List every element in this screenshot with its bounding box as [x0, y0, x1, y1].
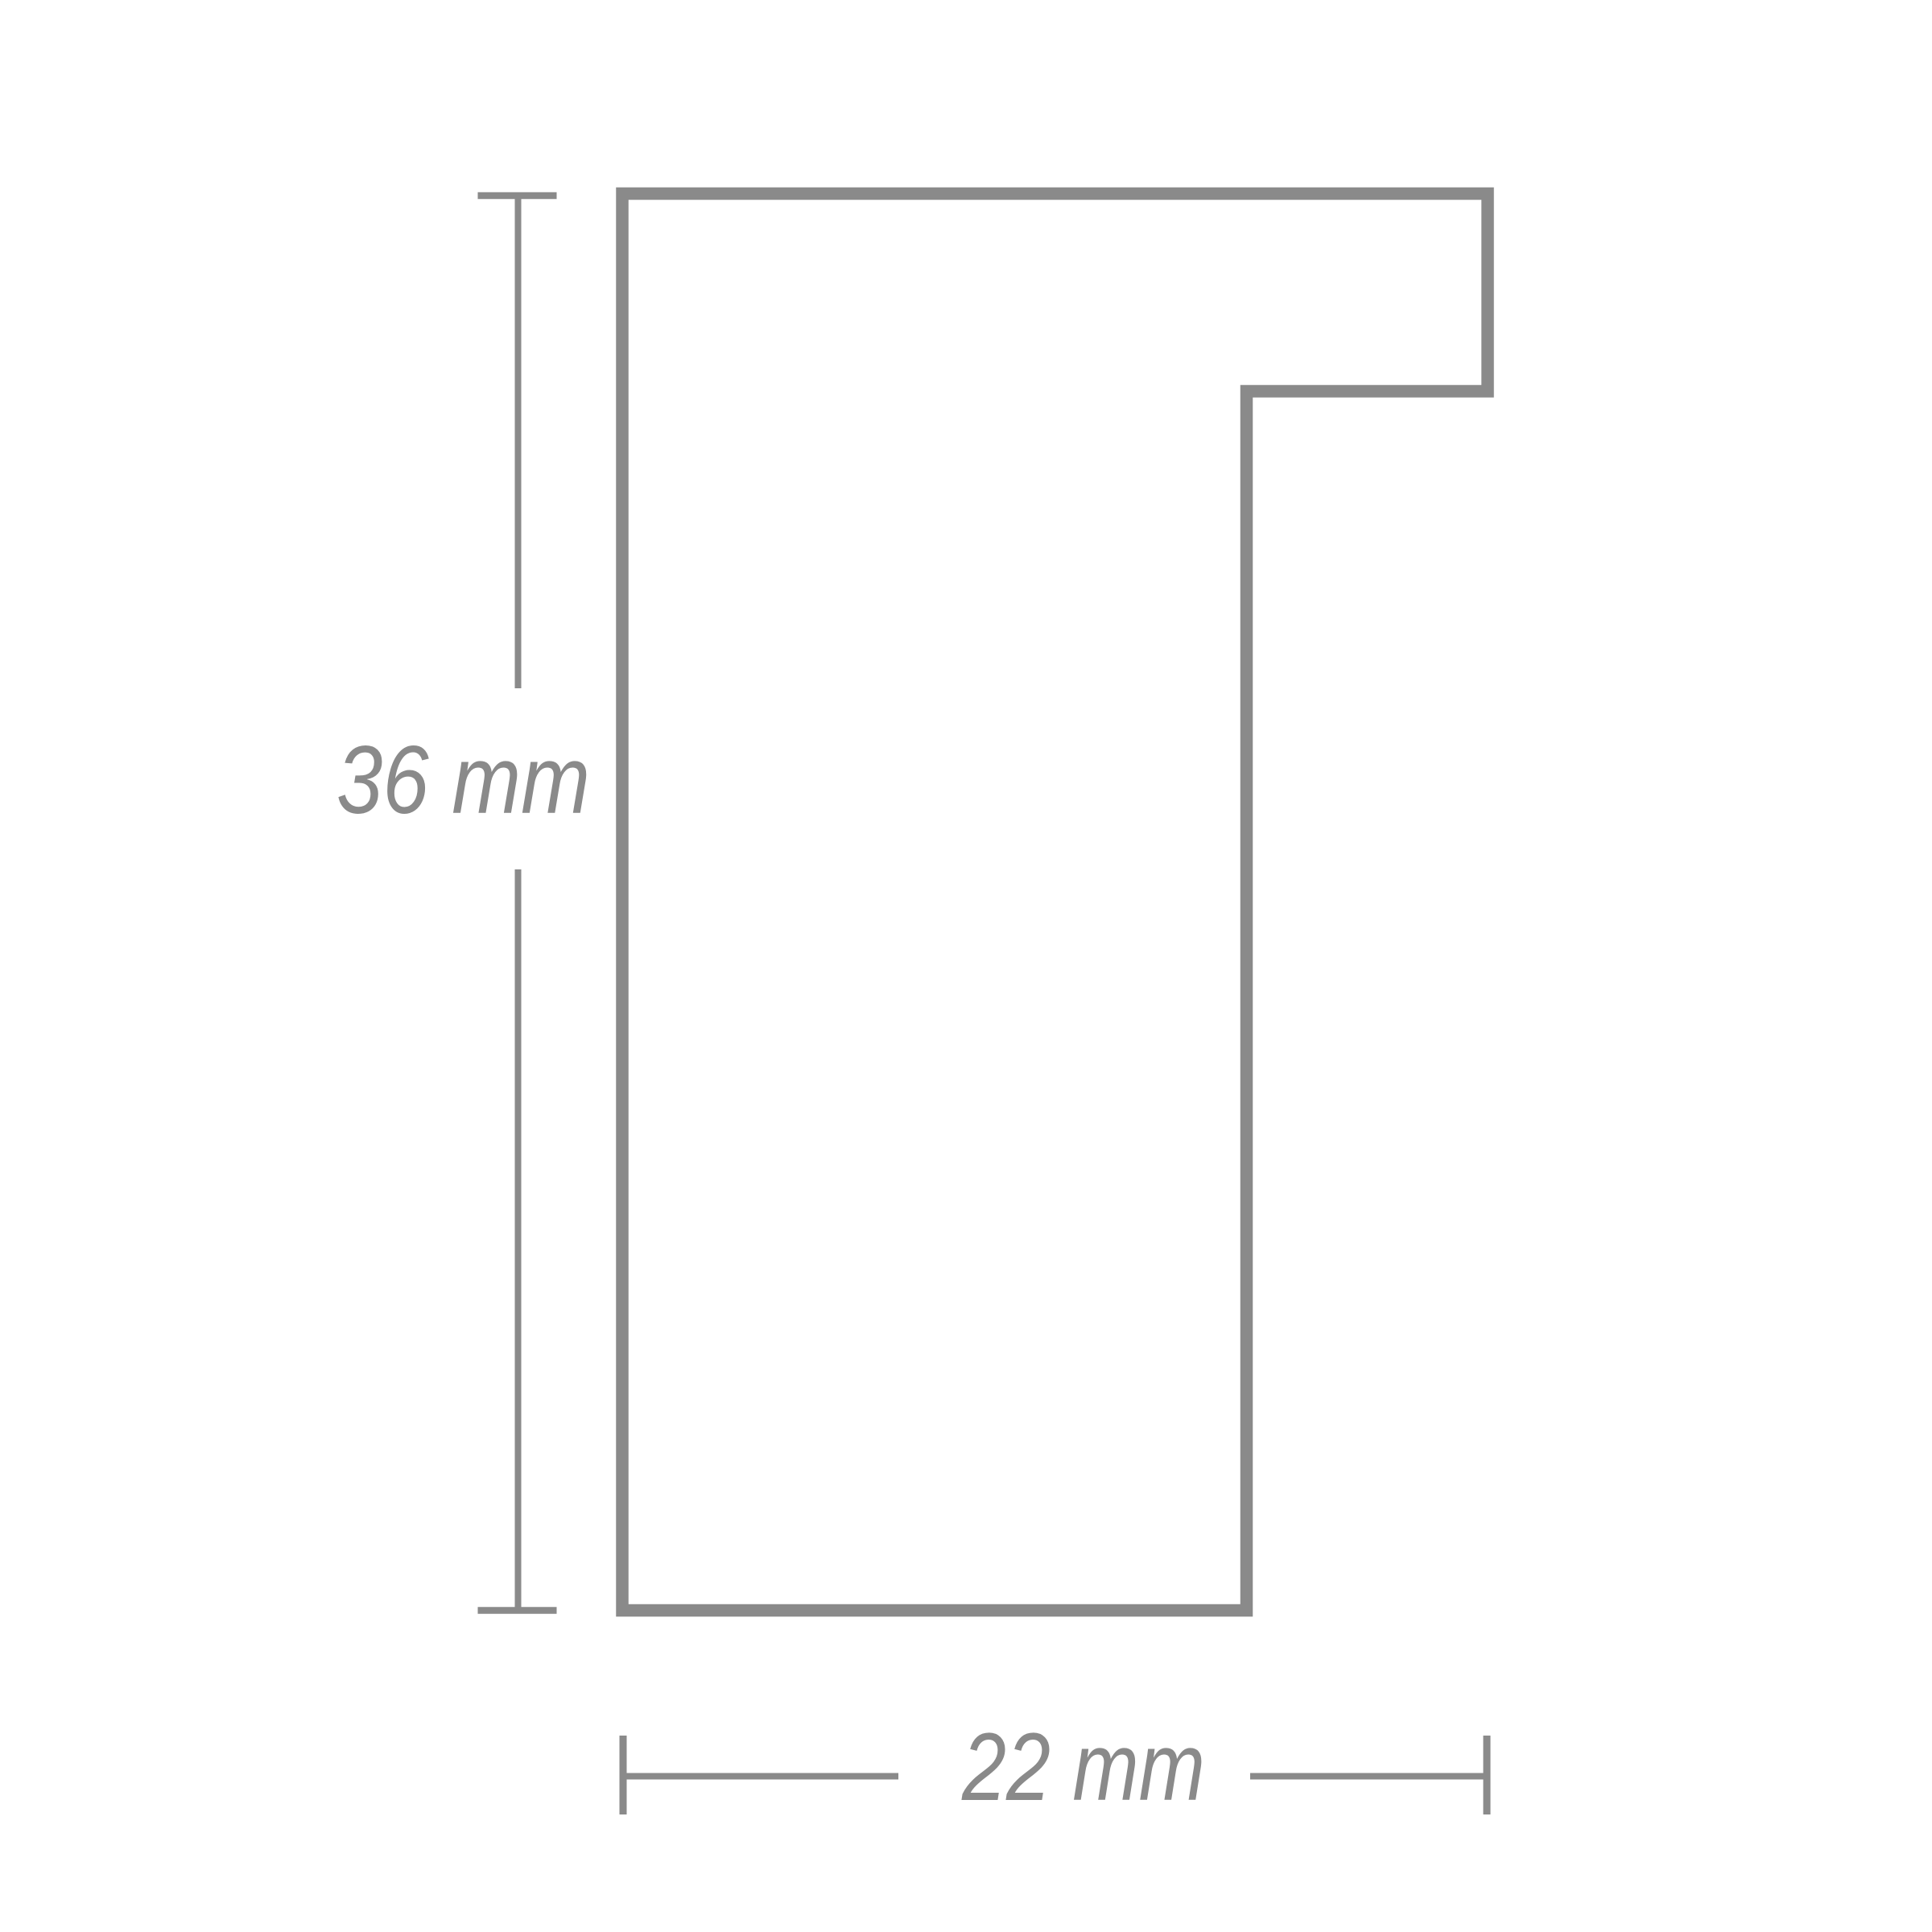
svg-text:36 mm: 36 mm — [336, 726, 590, 834]
svg-text:22 mm: 22 mm — [961, 1713, 1205, 1821]
